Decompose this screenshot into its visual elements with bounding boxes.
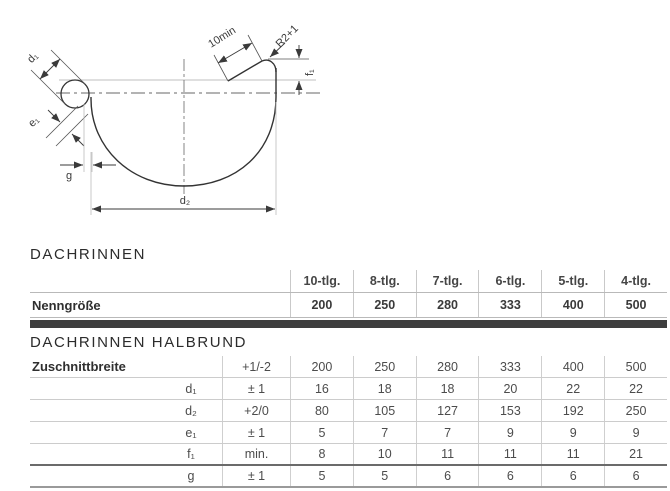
value-cell: 333 [478,356,541,377]
param-cell [160,356,222,377]
value-cell: 7 [353,422,416,443]
gutter-body-outline [91,68,276,186]
table2-title: DACHRINNEN HALBRUND [30,334,667,352]
value-cell: 9 [478,422,541,443]
value-cell: 127 [416,400,479,421]
value-cell: 5 [353,466,416,486]
row-label: Nenngröße [30,298,290,313]
e1-arrow [72,134,84,146]
col-header: 4-tlg. [604,270,667,292]
value-cell: 16 [290,378,353,399]
param-cell: g [160,466,222,486]
value-cell: 250 [604,400,667,421]
value-cell: 11 [541,444,604,464]
row-label [30,378,160,399]
table-row-f1: f₁ min. 8 10 11 11 11 21 [30,444,667,466]
param-cell: d₂ [160,400,222,421]
gutter-profile-svg: d₁ e₁ g d₂ 10min R2+1 f₁ [4,2,339,242]
value-cell: 5 [290,466,353,486]
value-cell: 6 [604,466,667,486]
col-header: 6-tlg. [478,270,541,292]
value-cell: 153 [478,400,541,421]
row-label: Zuschnittbreite [30,356,160,377]
d1-extension-line [31,70,65,104]
table1-title: DACHRINNEN [30,246,667,264]
value-cell: 21 [604,444,667,464]
d1-dimension-line [40,59,60,79]
table-row-e1: e₁ ± 1 5 7 7 9 9 9 [30,422,667,444]
e1-extension-line [46,106,78,138]
col-header: 7-tlg. [416,270,479,292]
value-cell: 18 [353,378,416,399]
value-cell: 280 [416,293,479,317]
flat-extension-line [248,35,262,61]
row-label [30,444,160,464]
flat-length-label: 10min [206,24,238,50]
table-row-d1: d₁ ± 1 16 18 18 20 22 22 [30,378,667,400]
value-cell: 250 [353,356,416,377]
table-row-zuschnittbreite: Zuschnittbreite +1/-2 200 250 280 333 40… [30,356,667,378]
tolerance-cell: ± 1 [222,422,290,443]
value-cell: 192 [541,400,604,421]
f1-label: f₁ [304,69,316,76]
radius-label: R2+1 [274,23,301,50]
value-cell: 400 [541,356,604,377]
d2-label: d₂ [180,195,190,207]
tolerance-cell: min. [222,444,290,464]
section-divider-bar [30,320,667,328]
col-header: 10-tlg. [290,270,353,292]
value-cell: 6 [541,466,604,486]
e1-arrow [48,110,60,122]
param-cell: f₁ [160,444,222,464]
param-cell: d₁ [160,378,222,399]
value-cell: 6 [478,466,541,486]
tolerance-cell: ± 1 [222,378,290,399]
value-cell: 280 [416,356,479,377]
value-cell: 80 [290,400,353,421]
row-label [30,422,160,443]
value-cell: 10 [353,444,416,464]
gutter-rear-lip [228,60,276,81]
value-cell: 250 [353,293,416,317]
value-cell: 400 [541,293,604,317]
nominal-size-row: Nenngröße 200 250 280 333 400 500 [30,292,667,318]
d1-label: d₁ [25,50,41,66]
value-cell: 9 [604,422,667,443]
table1-header-row: 10-tlg. 8-tlg. 7-tlg. 6-tlg. 5-tlg. 4-tl… [30,270,667,292]
g-label: g [66,170,72,182]
value-cell: 200 [290,356,353,377]
value-cell: 500 [604,293,667,317]
value-cell: 9 [541,422,604,443]
value-cell: 105 [353,400,416,421]
flat-extension-line [214,55,228,81]
value-cell: 22 [604,378,667,399]
row-label [30,466,160,486]
col-header: 5-tlg. [541,270,604,292]
row-label [30,400,160,421]
value-cell: 5 [290,422,353,443]
value-cell: 6 [416,466,479,486]
col-header: 8-tlg. [353,270,416,292]
e1-extension-line [56,114,88,146]
gutter-cross-section-diagram: d₁ e₁ g d₂ 10min R2+1 f₁ [4,2,339,247]
param-cell: e₁ [160,422,222,443]
value-cell: 20 [478,378,541,399]
tolerance-cell: +1/-2 [222,356,290,377]
value-cell: 18 [416,378,479,399]
value-cell: 11 [478,444,541,464]
table-row-g: g ± 1 5 5 6 6 6 6 [30,466,667,488]
value-cell: 500 [604,356,667,377]
tolerance-cell: +2/0 [222,400,290,421]
value-cell: 22 [541,378,604,399]
table-row-d2: d₂ +2/0 80 105 127 153 192 250 [30,400,667,422]
value-cell: 7 [416,422,479,443]
value-cell: 11 [416,444,479,464]
d1-extension-line [51,50,85,84]
e1-label: e₁ [26,114,42,130]
tolerance-cell: ± 1 [222,466,290,486]
specification-tables: DACHRINNEN 10-tlg. 8-tlg. 7-tlg. 6-tlg. … [30,246,667,488]
value-cell: 8 [290,444,353,464]
value-cell: 333 [478,293,541,317]
flat-dimension-line [218,43,252,63]
value-cell: 200 [290,293,353,317]
